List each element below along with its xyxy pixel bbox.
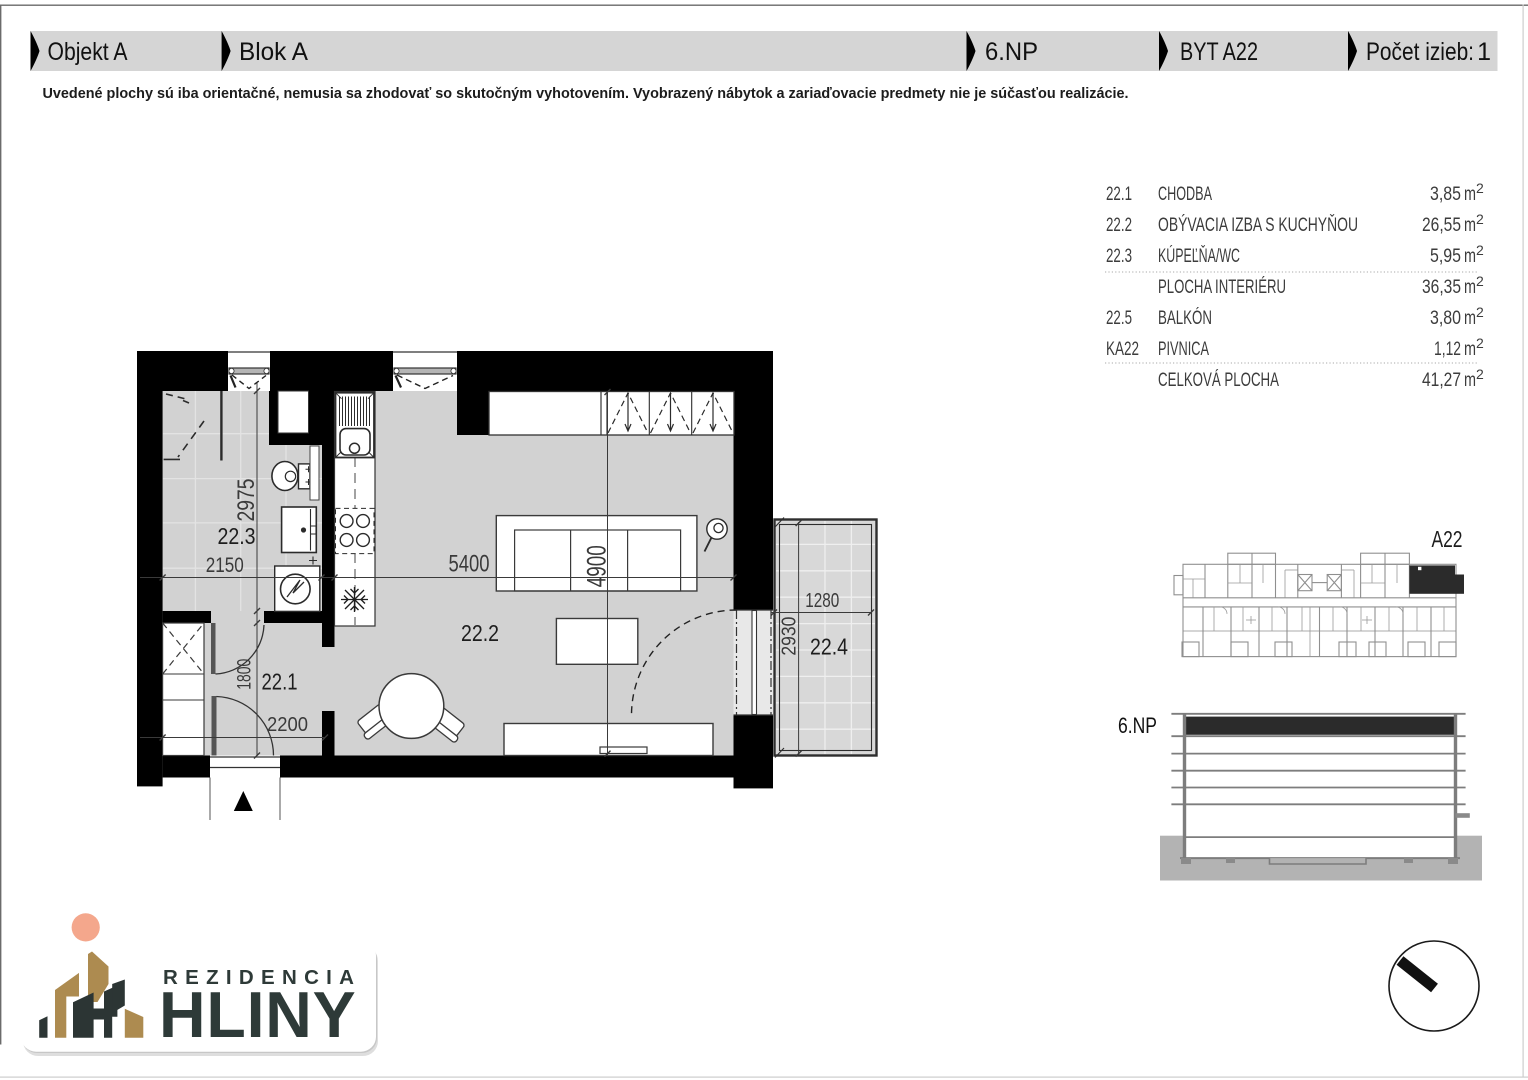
svg-text:22.1: 22.1: [262, 669, 298, 695]
svg-text:22.4: 22.4: [810, 634, 848, 660]
svg-text:m: m: [1464, 183, 1476, 205]
svg-text:6.NP: 6.NP: [1118, 713, 1157, 738]
svg-text:Blok A: Blok A: [239, 38, 308, 66]
svg-text:22.2: 22.2: [461, 620, 499, 646]
svg-text:CELKOVÁ PLOCHA: CELKOVÁ PLOCHA: [1158, 368, 1279, 391]
svg-text:A22: A22: [1432, 526, 1463, 552]
svg-text:OBÝVACIA IZBA S KUCHYŇOU: OBÝVACIA IZBA S KUCHYŇOU: [1158, 213, 1358, 236]
svg-text:BALKÓN: BALKÓN: [1158, 306, 1212, 329]
svg-text:22.2: 22.2: [1106, 214, 1132, 236]
svg-text:BYT A22: BYT A22: [1180, 38, 1258, 66]
svg-text:2: 2: [1476, 180, 1484, 196]
svg-text:m: m: [1464, 307, 1476, 329]
svg-text:Počet izieb:: Počet izieb:: [1366, 38, 1474, 66]
svg-text:KÚPEĽŇA/WC: KÚPEĽŇA/WC: [1158, 244, 1240, 267]
svg-text:2: 2: [1476, 335, 1484, 351]
svg-text:CHODBA: CHODBA: [1158, 183, 1212, 205]
svg-text:KA22: KA22: [1106, 338, 1139, 360]
svg-text:1280: 1280: [805, 590, 839, 612]
svg-text:2930: 2930: [779, 617, 801, 656]
svg-text:PLOCHA INTERIÉRU: PLOCHA INTERIÉRU: [1158, 275, 1286, 298]
svg-text:m: m: [1464, 214, 1476, 236]
svg-text:22.5: 22.5: [1106, 307, 1132, 329]
svg-text:1: 1: [1477, 38, 1491, 66]
svg-text:Uvedené plochy sú iba orientač: Uvedené plochy sú iba orientačné, nemusi…: [43, 86, 1129, 102]
svg-text:Objekt A: Objekt A: [48, 38, 128, 66]
svg-text:22.3: 22.3: [1106, 245, 1132, 267]
svg-text:26,55: 26,55: [1422, 214, 1461, 236]
svg-text:3,85: 3,85: [1430, 183, 1461, 205]
svg-text:m: m: [1464, 276, 1476, 298]
svg-text:2: 2: [1476, 242, 1484, 258]
svg-text:m: m: [1464, 369, 1476, 391]
svg-text:2150: 2150: [206, 554, 244, 577]
svg-text:4900: 4900: [582, 545, 612, 587]
svg-text:2200: 2200: [267, 714, 308, 736]
svg-text:2975: 2975: [233, 479, 260, 522]
svg-text:6.NP: 6.NP: [985, 38, 1038, 66]
svg-text:36,35: 36,35: [1422, 276, 1461, 298]
svg-text:2: 2: [1476, 366, 1484, 382]
svg-text:1800: 1800: [235, 659, 256, 690]
svg-text:2: 2: [1476, 211, 1484, 227]
svg-text:22.1: 22.1: [1106, 183, 1132, 205]
svg-text:PIVNICA: PIVNICA: [1158, 338, 1209, 360]
svg-text:41,27: 41,27: [1422, 369, 1461, 391]
svg-text:1,12: 1,12: [1434, 338, 1461, 360]
svg-text:22.3: 22.3: [218, 523, 256, 549]
svg-text:3,80: 3,80: [1430, 307, 1461, 329]
svg-text:2: 2: [1476, 273, 1484, 289]
svg-text:HLINY: HLINY: [159, 979, 357, 1051]
svg-text:m: m: [1464, 245, 1476, 267]
svg-text:2: 2: [1476, 304, 1484, 320]
svg-text:5,95: 5,95: [1430, 245, 1461, 267]
svg-text:5400: 5400: [449, 551, 490, 578]
svg-text:m: m: [1464, 338, 1476, 360]
